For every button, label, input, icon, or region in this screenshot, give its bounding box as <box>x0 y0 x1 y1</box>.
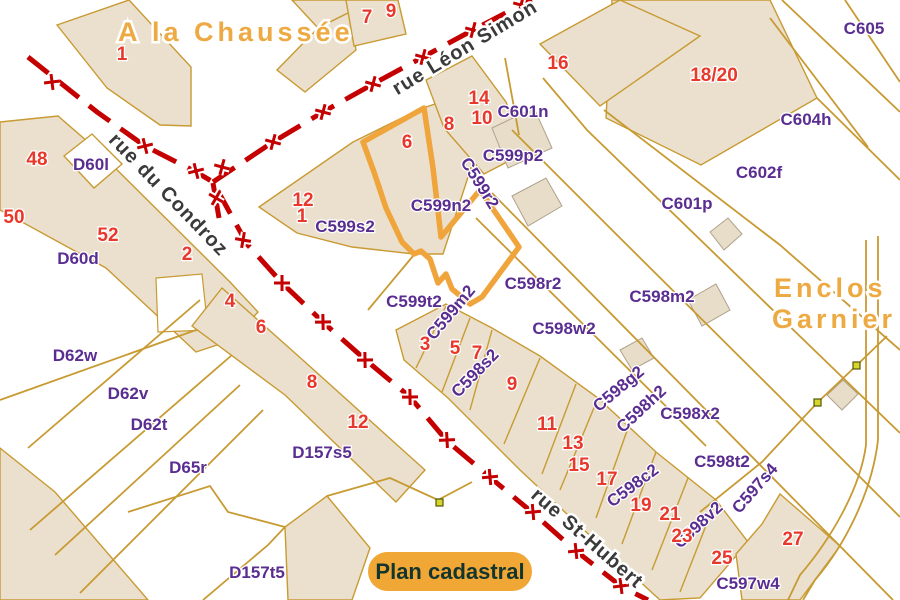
house-number: 1 <box>297 206 308 227</box>
parcel-label: D60d <box>57 249 99 268</box>
house-number: 52 <box>97 225 118 246</box>
badge-label: Plan cadastral <box>375 559 524 584</box>
house-number: 48 <box>26 149 47 170</box>
parcel-label: D62w <box>53 346 98 365</box>
house-number: 7 <box>472 343 483 364</box>
house-number: 27 <box>782 529 803 550</box>
parcel-label: C602f <box>736 163 783 182</box>
house-number: 8 <box>307 372 318 393</box>
house-number: 25 <box>711 548 733 569</box>
parcel-label: D62v <box>108 384 149 403</box>
building-small-5 <box>827 380 858 410</box>
house-number: 21 <box>659 504 681 525</box>
house-number: 15 <box>568 455 590 476</box>
house-number: 16 <box>547 53 568 74</box>
house-number: 50 <box>3 207 24 228</box>
parcel-label: C598m2 <box>629 287 694 306</box>
map-canvas[interactable]: A la ChausséeEnclosGarnier D60lD60dD62wD… <box>0 0 900 600</box>
building-small-3 <box>710 218 742 250</box>
house-number: 13 <box>562 433 583 454</box>
house-number: 9 <box>507 374 518 395</box>
house-number: 18/20 <box>690 65 738 86</box>
parcel-label: C601n <box>497 102 548 121</box>
house-number: 6 <box>256 317 267 338</box>
house-number: 8 <box>444 114 455 135</box>
wedge-bottom-left <box>0 448 148 600</box>
house-number: 19 <box>630 495 651 516</box>
parcel-label: C597w4 <box>716 574 780 593</box>
area-name: Enclos <box>774 273 887 303</box>
band-condroz-south <box>192 288 425 502</box>
house-number: 4 <box>225 291 236 312</box>
house-number: 2 <box>182 244 193 265</box>
parcel-label: D62t <box>131 415 168 434</box>
building-7-9 <box>346 0 406 46</box>
building-d157 <box>285 496 370 600</box>
parcel-label: C598x2 <box>660 404 720 423</box>
parcel-label: C599t2 <box>386 292 442 311</box>
parcel-label: C605 <box>844 19 885 38</box>
house-number: 3 <box>420 334 431 355</box>
house-number: 12 <box>347 412 368 433</box>
area-name: A la Chaussée <box>118 17 354 47</box>
parcel-label: C601p <box>661 194 712 213</box>
parcel-label: C604h <box>780 110 831 129</box>
cadastral-map-view[interactable]: A la ChausséeEnclosGarnier D60lD60dD62wD… <box>0 0 900 600</box>
house-number: 9 <box>386 1 397 22</box>
house-number: 1 <box>117 44 128 65</box>
parcel-label: D157t5 <box>229 563 285 582</box>
parcel-label: D157s5 <box>292 443 352 462</box>
area-name: Garnier <box>772 304 896 334</box>
parcel-label: D65r <box>169 458 207 477</box>
house-number: 11 <box>537 414 558 435</box>
house-number: 6 <box>402 132 413 153</box>
parcel-label: C598r2 <box>505 274 562 293</box>
house-number: 10 <box>471 108 492 129</box>
parcel-label: C599s2 <box>315 217 375 236</box>
house-number: 14 <box>468 88 490 109</box>
house-number: 23 <box>671 526 692 547</box>
building-small-2 <box>512 178 562 226</box>
house-number: 7 <box>362 7 373 28</box>
parcel-label: C598w2 <box>532 319 595 338</box>
parcel-label: D60l <box>73 155 109 174</box>
parcel-label: C598t2 <box>694 452 750 471</box>
house-number: 17 <box>596 469 617 490</box>
plan-cadastral-badge[interactable]: Plan cadastral <box>368 552 532 591</box>
parcel-label: C599p2 <box>483 146 543 165</box>
house-number: 5 <box>450 338 461 359</box>
parcel-label: C599n2 <box>411 196 471 215</box>
